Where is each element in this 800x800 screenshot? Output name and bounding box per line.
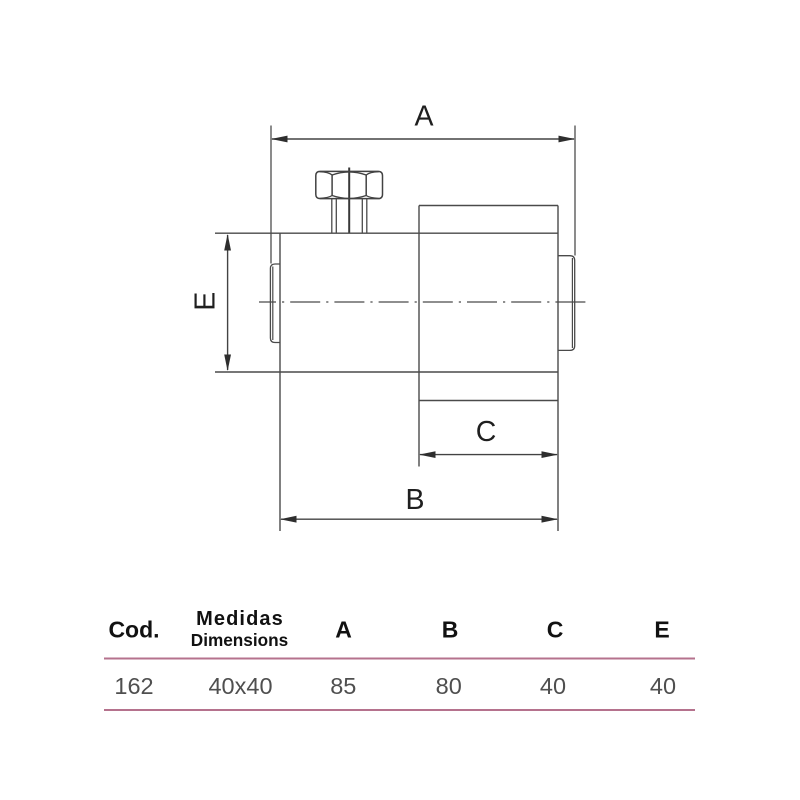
svg-text:A: A [414, 101, 433, 133]
svg-text:Dimensions: Dimensions [191, 630, 288, 650]
svg-text:C: C [476, 416, 497, 448]
svg-text:Cod.: Cod. [108, 617, 159, 643]
svg-text:B: B [405, 484, 424, 516]
svg-text:B: B [442, 617, 459, 643]
svg-text:A: A [335, 617, 352, 643]
svg-text:Medidas: Medidas [196, 608, 284, 630]
svg-text:C: C [547, 617, 564, 643]
svg-text:85: 85 [330, 673, 356, 699]
svg-text:80: 80 [436, 673, 462, 699]
svg-text:40x40: 40x40 [208, 673, 272, 699]
svg-text:E: E [654, 617, 669, 643]
svg-text:40: 40 [650, 673, 676, 699]
svg-text:E: E [189, 292, 221, 311]
svg-text:162: 162 [114, 673, 153, 699]
svg-text:40: 40 [540, 673, 566, 699]
